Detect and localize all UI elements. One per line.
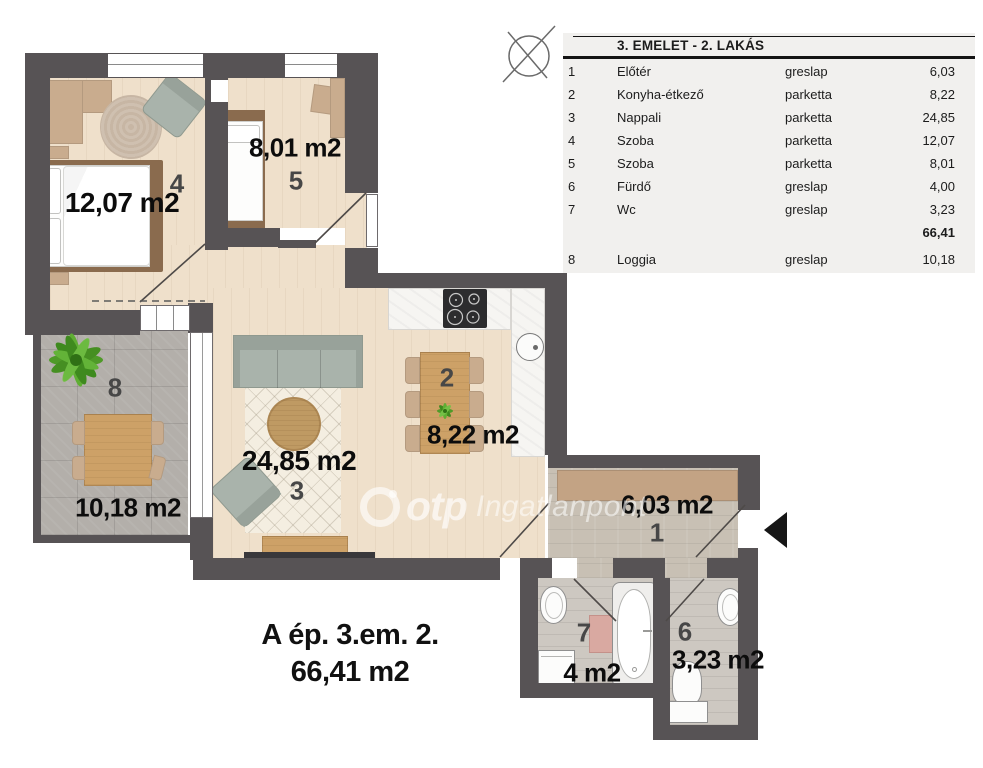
legend-table: 3. EMELET - 2. LAKÁS 1 Előtér greslap 6,… [563, 33, 975, 273]
washbasin [540, 586, 567, 624]
wall [205, 228, 280, 247]
kitchen-sink [516, 333, 544, 361]
room-6-area-label: 3,23 m2 [672, 645, 764, 676]
wall [738, 468, 760, 510]
entry-door-gap-6 [665, 558, 707, 578]
wall [653, 725, 758, 740]
legend-row: 7 Wc greslap 3,23 [563, 198, 975, 221]
chair [72, 456, 85, 480]
wall [190, 518, 213, 560]
chair [469, 391, 484, 418]
toilet-tank [664, 701, 708, 723]
wall [613, 558, 665, 578]
apartment-id: A ép. 3.em. 2. [195, 617, 505, 654]
table-plant-icon [436, 402, 454, 420]
wall [545, 288, 567, 455]
loggia-window [190, 332, 213, 518]
room-6-number: 6 [678, 617, 692, 648]
loggia-wall [33, 316, 143, 324]
legend-loggia-row: 8 Loggia greslap 10,18 [563, 248, 975, 271]
window [108, 53, 203, 78]
wall [707, 558, 738, 578]
legend-row: 1 Előtér greslap 6,03 [563, 60, 975, 83]
wall [520, 565, 538, 690]
wall [653, 578, 670, 725]
room-5-area-label: 8,01 m2 [249, 133, 341, 164]
room-8-number: 8 [108, 373, 122, 404]
room-4-area-label: 12,07 m2 [65, 187, 179, 219]
room-2-number: 2 [440, 363, 454, 394]
floorplan-page: 4 12,07 m2 8,01 m2 5 24,85 m2 3 2 8,22 m… [0, 0, 983, 768]
legend-row: 4 Szoba parketta 12,07 [563, 129, 975, 152]
sofa [233, 335, 363, 388]
shaft [211, 80, 228, 102]
legend-total-row: 66,41 [563, 221, 975, 244]
entrance-arrow-icon [764, 512, 787, 548]
window [285, 53, 337, 78]
room5-door-leaf [366, 194, 378, 247]
room-5-number: 5 [289, 166, 303, 197]
room-3-area-label: 24,85 m2 [242, 445, 356, 477]
legend-row: 6 Fürdő greslap 4,00 [563, 175, 975, 198]
loggia-wall [33, 316, 41, 543]
room-7-number: 7 [577, 618, 591, 649]
chair [72, 421, 85, 445]
room-3-number: 3 [290, 476, 304, 507]
legend-title-rule [563, 56, 975, 59]
wall [278, 240, 316, 248]
room-1-area-label: 6,03 m2 [621, 490, 713, 521]
room-2-area-label: 8,22 m2 [427, 420, 519, 451]
entry-door-gap-7 [577, 558, 613, 578]
chair [151, 421, 164, 445]
legend-row: 3 Nappali parketta 24,85 [563, 106, 975, 129]
wall [345, 53, 378, 193]
chair [469, 357, 484, 384]
loggia-table [84, 414, 152, 486]
room-7-area-label: 4 m2 [563, 658, 620, 689]
plant-icon [44, 326, 108, 392]
legend-top-rule [573, 36, 975, 37]
wall [548, 455, 760, 468]
wardrobe [48, 80, 83, 144]
room-1-number: 1 [650, 518, 664, 549]
wall [362, 273, 567, 288]
legend-title: 3. EMELET - 2. LAKÁS [617, 38, 764, 53]
coffee-table [267, 397, 321, 451]
wardrobe [330, 78, 345, 138]
legend-row: 2 Konyha-étkező parketta 8,22 [563, 83, 975, 106]
chair [405, 391, 420, 418]
chair [405, 425, 420, 452]
stove-icon [443, 289, 487, 328]
compass-icon [500, 25, 560, 87]
apartment-total-area: 66,41 m2 [195, 654, 505, 691]
wall [193, 558, 500, 580]
wall [25, 53, 50, 335]
legend-row: 5 Szoba parketta 8,01 [563, 152, 975, 175]
entrance-door-gap [738, 510, 760, 548]
apartment-caption: A ép. 3.em. 2. 66,41 m2 [195, 617, 505, 691]
balcony-door [140, 305, 190, 331]
wall [188, 303, 213, 333]
chair [405, 357, 420, 384]
room-8-area-label: 10,18 m2 [75, 493, 181, 524]
wall [520, 558, 552, 578]
loggia-wall [33, 535, 190, 543]
